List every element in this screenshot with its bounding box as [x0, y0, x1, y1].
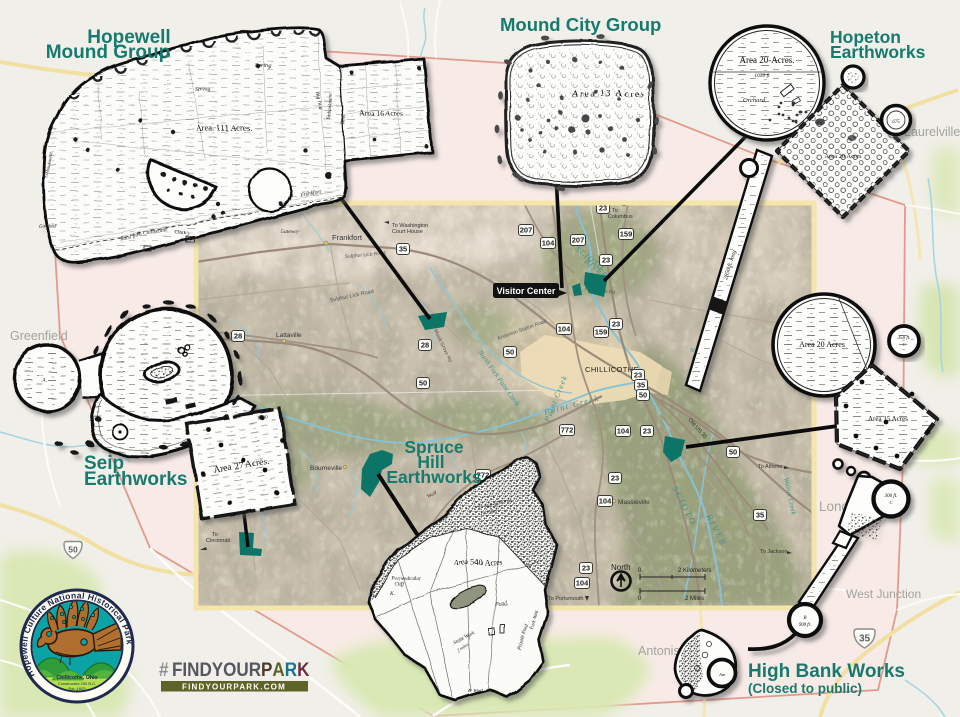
svg-text:Clark's: Clark's: [175, 231, 189, 236]
svg-text:300 ft.: 300 ft.: [885, 494, 898, 499]
svg-text:Area 20 Acres: Area 20 Acres: [799, 340, 845, 349]
svg-text:(Closed to public): (Closed to public): [748, 681, 862, 696]
svg-text:Mound Group: Mound Group: [46, 42, 171, 63]
svg-text:207: 207: [572, 236, 585, 245]
svg-text:Frankfort: Frankfort: [332, 233, 363, 242]
svg-text:50: 50: [419, 379, 427, 388]
svg-text:Bank: Bank: [341, 114, 347, 125]
svg-text:CHILLICOTHE: CHILLICOTHE: [585, 365, 639, 374]
svg-text:104: 104: [617, 427, 630, 436]
svg-text:Lattaville: Lattaville: [276, 332, 302, 339]
svg-text:Jan: Jan: [719, 672, 726, 677]
svg-text:Cincinnati: Cincinnati: [206, 538, 230, 544]
svg-text:Visitor Center: Visitor Center: [497, 286, 556, 296]
svg-text:Pond.: Pond.: [493, 601, 508, 607]
svg-text:Area 540 Acres: Area 540 Acres: [453, 558, 503, 567]
svg-text:West Junction: West Junction: [846, 587, 921, 601]
svg-text:Perpendicular: Perpendicular: [391, 577, 421, 582]
svg-text:23: 23: [643, 427, 651, 436]
svg-text:23: 23: [582, 564, 590, 573]
svg-text:159: 159: [620, 230, 633, 239]
svg-text:35: 35: [859, 634, 871, 645]
svg-text:50: 50: [506, 348, 514, 357]
svg-text:1050 ft: 1050 ft: [754, 72, 770, 79]
svg-text:50: 50: [639, 391, 647, 400]
svg-text:772: 772: [561, 426, 574, 435]
svg-text:104: 104: [599, 497, 612, 506]
svg-text:Area 20-Acres.: Area 20-Acres.: [740, 55, 795, 65]
svg-text:Spring: Spring: [195, 87, 211, 93]
svg-text:23: 23: [611, 474, 619, 483]
svg-text:Greenfield: Greenfield: [10, 329, 68, 343]
svg-text:350 ft.: 350 ft.: [898, 336, 911, 341]
svg-text:To Portsmouth: To Portsmouth: [548, 596, 583, 602]
svg-text:Bourneville: Bourneville: [310, 465, 343, 472]
svg-text:104: 104: [558, 325, 571, 334]
svg-text:Columbus: Columbus: [608, 214, 633, 220]
svg-text:50: 50: [68, 545, 78, 555]
svg-text:Area 13 Acres: Area 13 Acres: [572, 90, 646, 100]
svg-text:Antonis: Antonis: [638, 644, 680, 658]
svg-text:FINDYOURPARK.COM: FINDYOURPARK.COM: [182, 683, 286, 692]
svg-text:2 Miles: 2 Miles: [685, 596, 704, 602]
svg-text:Spring: Spring: [255, 63, 271, 69]
svg-text:Mound City Group: Mound City Group: [500, 14, 661, 35]
svg-text:B Wall.: B Wall.: [468, 688, 484, 694]
svg-text:50: 50: [729, 448, 737, 457]
svg-text:#FINDYOURPARK: #FINDYOURPARK: [159, 658, 310, 680]
svg-text:Gateway: Gateway: [280, 229, 300, 235]
svg-text:23: 23: [612, 320, 620, 329]
svg-text:Massieville: Massieville: [618, 499, 650, 506]
svg-text:900 ft.: 900 ft.: [799, 623, 811, 628]
svg-text:Area 20 Acres: Area 20 Acres: [824, 153, 862, 160]
svg-text:159: 159: [595, 328, 608, 337]
svg-text:Gateway: Gateway: [38, 223, 58, 229]
svg-text:B: B: [804, 616, 807, 621]
svg-text:23: 23: [602, 256, 610, 265]
svg-text:To Jackson: To Jackson: [760, 549, 788, 555]
svg-text:2 Kilometers: 2 Kilometers: [678, 568, 711, 574]
svg-text:207: 207: [520, 226, 533, 235]
svg-text:35: 35: [399, 245, 407, 254]
svg-text:23: 23: [634, 371, 642, 380]
svg-text:K.: K.: [389, 591, 395, 597]
svg-text:35: 35: [637, 381, 645, 390]
svg-text:104: 104: [576, 579, 589, 588]
svg-text:Laurelville: Laurelville: [904, 125, 960, 139]
svg-text:Area 15 Acres: Area 15 Acres: [868, 415, 908, 423]
svg-text:To Athens: To Athens: [758, 464, 782, 470]
svg-text:675: 675: [892, 120, 900, 125]
svg-text:35: 35: [756, 511, 764, 520]
svg-text:28: 28: [421, 341, 429, 350]
svg-text:Court House: Court House: [392, 229, 423, 235]
svg-text:Earthworks: Earthworks: [830, 42, 926, 62]
svg-text:A.: A.: [41, 378, 47, 384]
svg-text:Cliff: Cliff: [395, 583, 405, 588]
svg-text:Area 16 Acres: Area 16 Acres: [360, 109, 403, 118]
svg-text:28: 28: [234, 332, 242, 341]
svg-text:Orchard: Orchard: [743, 97, 766, 104]
svg-text:Earthworks: Earthworks: [386, 467, 482, 487]
svg-text:High Bank Works: High Bank Works: [748, 661, 905, 682]
svg-text:104: 104: [542, 239, 555, 248]
svg-text:Area. 111 Acres.: Area. 111 Acres.: [196, 123, 253, 133]
svg-text:Earthworks: Earthworks: [84, 469, 187, 490]
